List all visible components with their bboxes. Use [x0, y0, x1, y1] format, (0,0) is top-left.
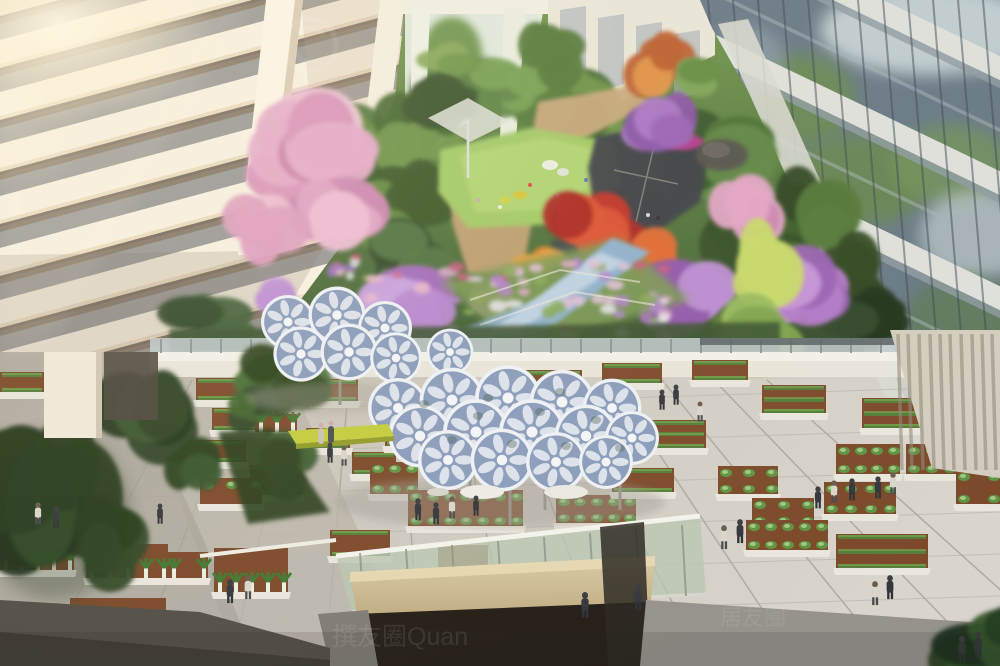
svg-text:居友圈: 居友圈: [720, 605, 786, 630]
svg-text:撰友圈Quan: 撰友圈Quan: [332, 623, 468, 651]
